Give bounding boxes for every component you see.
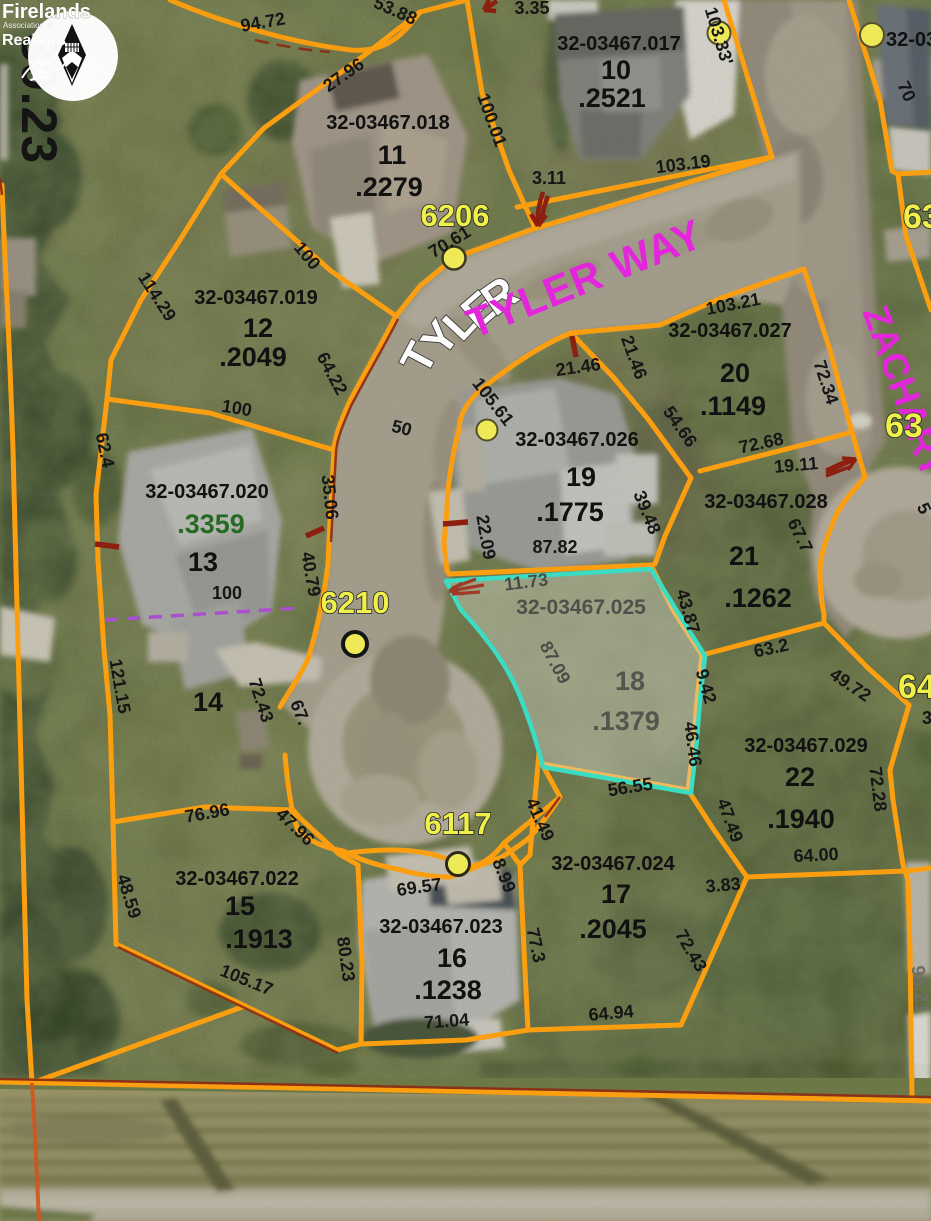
svg-text:.2521: .2521 xyxy=(578,83,646,113)
svg-text:11: 11 xyxy=(378,140,407,170)
svg-text:64.94: 64.94 xyxy=(588,1001,635,1025)
svg-text:.1262: .1262 xyxy=(724,583,792,613)
svg-text:.2045: .2045 xyxy=(579,914,647,944)
svg-text:32-03467.020: 32-03467.020 xyxy=(145,481,268,503)
svg-text:6206: 6206 xyxy=(421,198,490,233)
svg-text:71.04: 71.04 xyxy=(423,1009,469,1032)
svg-text:32-03467.023: 32-03467.023 xyxy=(379,916,502,938)
svg-text:.1379: .1379 xyxy=(592,706,660,736)
svg-text:19.11: 19.11 xyxy=(773,453,819,477)
svg-text:63: 63 xyxy=(903,198,931,236)
svg-text:18: 18 xyxy=(615,666,645,696)
svg-text:.3359: .3359 xyxy=(177,509,245,539)
svg-text:13: 13 xyxy=(188,547,218,577)
svg-text:.2279: .2279 xyxy=(355,172,423,202)
svg-text:3.83: 3.83 xyxy=(705,874,742,897)
svg-text:32-03467.019: 32-03467.019 xyxy=(194,287,317,309)
svg-text:Association of: Association of xyxy=(3,21,54,30)
svg-text:64.00: 64.00 xyxy=(793,844,839,866)
svg-text:19: 19 xyxy=(566,462,596,492)
svg-text:14: 14 xyxy=(193,687,223,717)
svg-text:32-03467.017: 32-03467.017 xyxy=(557,33,680,55)
svg-text:64: 64 xyxy=(898,668,931,706)
svg-text:32-03467.018: 32-03467.018 xyxy=(326,112,449,134)
svg-text:6117: 6117 xyxy=(424,806,491,841)
svg-text:22: 22 xyxy=(785,762,815,792)
svg-text:15: 15 xyxy=(225,891,255,921)
svg-text:16: 16 xyxy=(437,943,467,973)
svg-text:.1149: .1149 xyxy=(700,391,766,421)
svg-text:32-03: 32-03 xyxy=(886,29,931,51)
svg-text:63: 63 xyxy=(885,407,923,445)
svg-text:32-03467.027: 32-03467.027 xyxy=(668,320,791,342)
svg-text:20: 20 xyxy=(720,358,750,388)
svg-text:10: 10 xyxy=(601,55,631,85)
svg-text:Firelands: Firelands xyxy=(2,1,91,23)
svg-text:Realtors: Realtors xyxy=(2,32,66,49)
svg-text:32-03467.026: 32-03467.026 xyxy=(515,429,638,451)
svg-text:17: 17 xyxy=(601,879,631,909)
svg-text:21: 21 xyxy=(729,541,759,571)
svg-text:100: 100 xyxy=(212,583,242,603)
svg-text:32-03467.022: 32-03467.022 xyxy=(175,868,298,890)
svg-text:32-03467.029: 32-03467.029 xyxy=(744,735,867,757)
svg-text:.1913: .1913 xyxy=(225,924,293,954)
svg-text:3: 3 xyxy=(922,708,931,728)
svg-text:32-03467.025: 32-03467.025 xyxy=(516,596,646,619)
svg-text:32-03467.024: 32-03467.024 xyxy=(551,853,675,875)
svg-text:.1238: .1238 xyxy=(414,975,482,1005)
svg-text:.2049: .2049 xyxy=(219,342,287,372)
svg-text:12: 12 xyxy=(243,313,273,343)
svg-text:32-03467.028: 32-03467.028 xyxy=(704,491,827,513)
svg-text:6210: 6210 xyxy=(321,585,390,620)
svg-text:3.11: 3.11 xyxy=(532,168,566,188)
svg-text:3.35: 3.35 xyxy=(514,0,549,18)
svg-text:.1775: .1775 xyxy=(536,497,604,527)
svg-text:87.82: 87.82 xyxy=(532,537,577,557)
svg-text:.1940: .1940 xyxy=(767,804,835,834)
